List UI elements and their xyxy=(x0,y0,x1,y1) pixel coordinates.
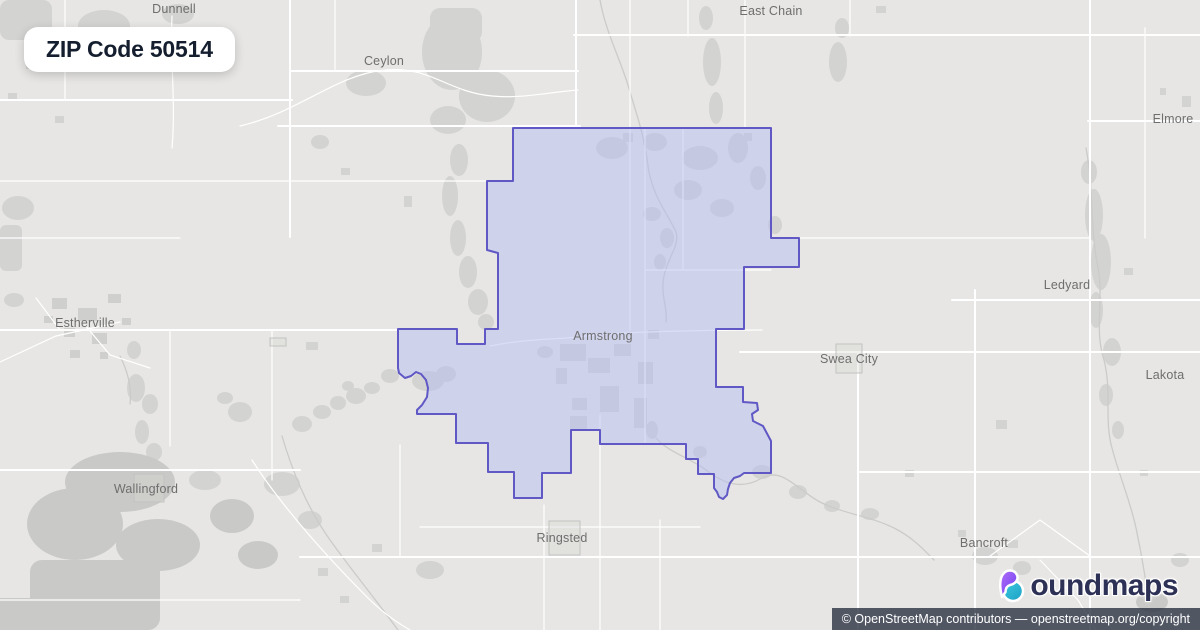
attribution-link[interactable]: © OpenStreetMap contributors — openstree… xyxy=(842,612,1190,626)
zip-badge-title: ZIP Code 50514 xyxy=(46,36,213,62)
town-label-ceylon: Ceylon xyxy=(364,54,404,68)
town-label-estherville: Estherville xyxy=(55,316,115,330)
town-label-lakota: Lakota xyxy=(1146,368,1185,382)
map-canvas[interactable]: Dunnell Ceylon East Chain Elmore Estherv… xyxy=(0,0,1200,630)
town-label-dunnell: Dunnell xyxy=(152,2,196,16)
town-label-ledyard: Ledyard xyxy=(1044,278,1091,292)
map-tiles xyxy=(0,0,1200,630)
town-label-east-chain: East Chain xyxy=(739,4,802,18)
town-label-swea-city: Swea City xyxy=(820,352,878,366)
town-label-elmore: Elmore xyxy=(1153,112,1194,126)
boundmaps-b-icon xyxy=(995,567,1029,604)
zip-badge: ZIP Code 50514 xyxy=(24,27,235,72)
boundmaps-wordmark: oundmaps xyxy=(1030,569,1178,603)
boundmaps-logo: oundmaps xyxy=(995,567,1178,604)
town-label-armstrong: Armstrong xyxy=(573,329,632,343)
town-label-wallingford: Wallingford xyxy=(114,482,178,496)
attribution-bar: © OpenStreetMap contributors — openstree… xyxy=(832,608,1200,630)
town-label-ringsted: Ringsted xyxy=(537,531,588,545)
town-label-bancroft: Bancroft xyxy=(960,536,1008,550)
